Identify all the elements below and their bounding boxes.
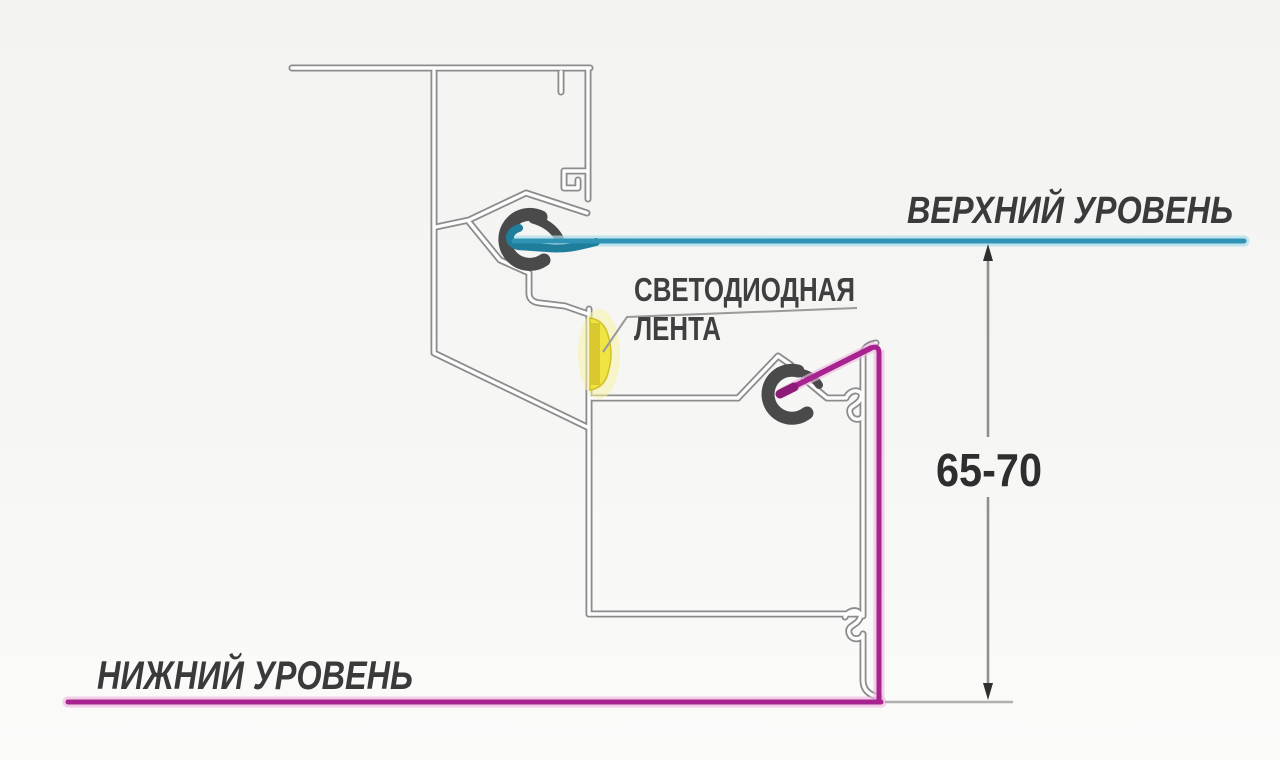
diagram-canvas: ВЕРХНИЙ УРОВЕНЬ НИЖНИЙ УРОВЕНЬ СВЕТОДИОД… — [0, 0, 1280, 760]
dimension-arrow-down — [983, 683, 993, 700]
lower-fabric-hook — [780, 387, 794, 394]
upper-level-label: ВЕРХНИЙ УРОВЕНЬ — [907, 187, 1233, 232]
two-level-ceiling-profile-diagram: ВЕРХНИЙ УРОВЕНЬ НИЖНИЙ УРОВЕНЬ СВЕТОДИОД… — [0, 0, 1280, 760]
lower-level-label: НИЖНИЙ УРОВЕНЬ — [97, 651, 413, 698]
upper-profile-outline — [292, 68, 590, 614]
led-label-line2: ЛЕНТА — [634, 310, 721, 347]
led-strip — [578, 309, 620, 399]
dimension-value: 65-70 — [936, 444, 1042, 496]
lower-profile-outline — [589, 343, 879, 697]
lower-level-line — [68, 347, 881, 702]
led-core — [591, 323, 600, 385]
led-label-line1: СВЕТОДИОДНАЯ — [634, 271, 855, 308]
dimension-arrow-up — [983, 244, 993, 261]
